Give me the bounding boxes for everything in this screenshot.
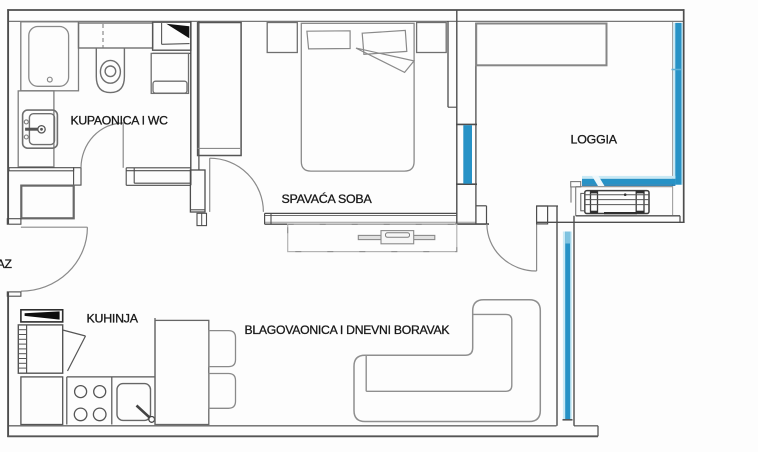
svg-text:KUHINJA: KUHINJA (87, 312, 139, 326)
svg-text:SPAVAĆA SOBA: SPAVAĆA SOBA (282, 191, 373, 206)
svg-text:ULAZ: ULAZ (0, 257, 12, 271)
svg-text:KUPAONICA I WC: KUPAONICA I WC (71, 114, 169, 128)
svg-text:LOGGIA: LOGGIA (571, 133, 618, 147)
svg-text:BLAGOVAONICA I DNEVNI BORAVAK: BLAGOVAONICA I DNEVNI BORAVAK (245, 323, 450, 337)
